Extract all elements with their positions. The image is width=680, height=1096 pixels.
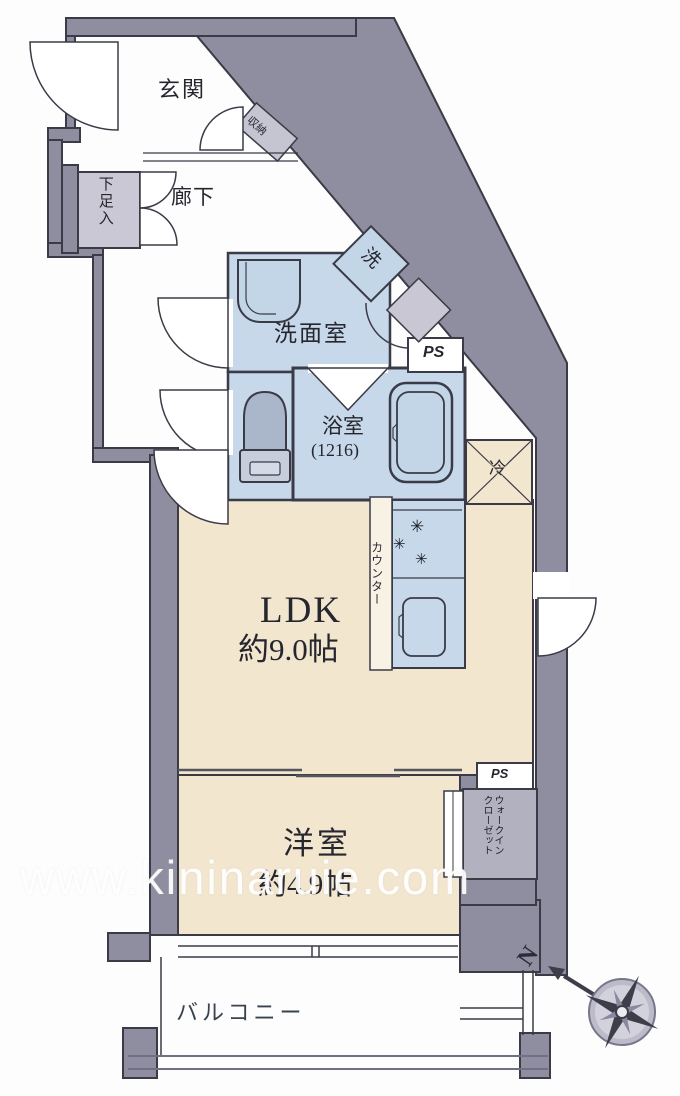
wic-line2: クローゼット bbox=[481, 795, 492, 855]
label-ps-lower: PS bbox=[491, 767, 508, 781]
label-ldk-size: 約9.0帖 bbox=[238, 634, 339, 667]
room-ldk bbox=[178, 458, 533, 775]
label-walkin-closet: ウォークイン クローゼット bbox=[481, 795, 503, 855]
label-bathroom-size: (1216) bbox=[311, 441, 359, 460]
balcony-railing bbox=[128, 1056, 548, 1069]
wic-line1: ウォークイン bbox=[492, 795, 503, 855]
label-ps-upper: PS bbox=[423, 345, 444, 362]
label-hallway: 廊下 bbox=[171, 186, 215, 208]
floorplan-page: ✳ ✳ ✳ bbox=[0, 0, 680, 1096]
label-bathroom: 浴室 bbox=[322, 415, 364, 437]
compass-rose-icon bbox=[548, 966, 661, 1051]
burner-icon: ✳ bbox=[415, 552, 428, 568]
toilet-bowl bbox=[244, 392, 286, 452]
label-counter: カウンター bbox=[370, 541, 383, 606]
label-genkan: 玄関 bbox=[158, 78, 206, 101]
label-fridge: 冷 bbox=[489, 460, 506, 478]
label-shoe-cabinet: 下足入 bbox=[96, 176, 112, 227]
washbasin bbox=[238, 260, 300, 322]
label-ldk: LDK bbox=[260, 592, 342, 631]
floorplan-drawing: ✳ ✳ ✳ bbox=[0, 0, 680, 1096]
label-balcony: バルコニー bbox=[176, 1001, 306, 1024]
burner-icon: ✳ bbox=[393, 537, 406, 553]
label-washroom: 洗面室 bbox=[274, 322, 349, 346]
entrance-door bbox=[30, 42, 118, 130]
burner-icon: ✳ bbox=[410, 517, 424, 536]
watermark: www.kininaruie.com bbox=[20, 853, 471, 902]
